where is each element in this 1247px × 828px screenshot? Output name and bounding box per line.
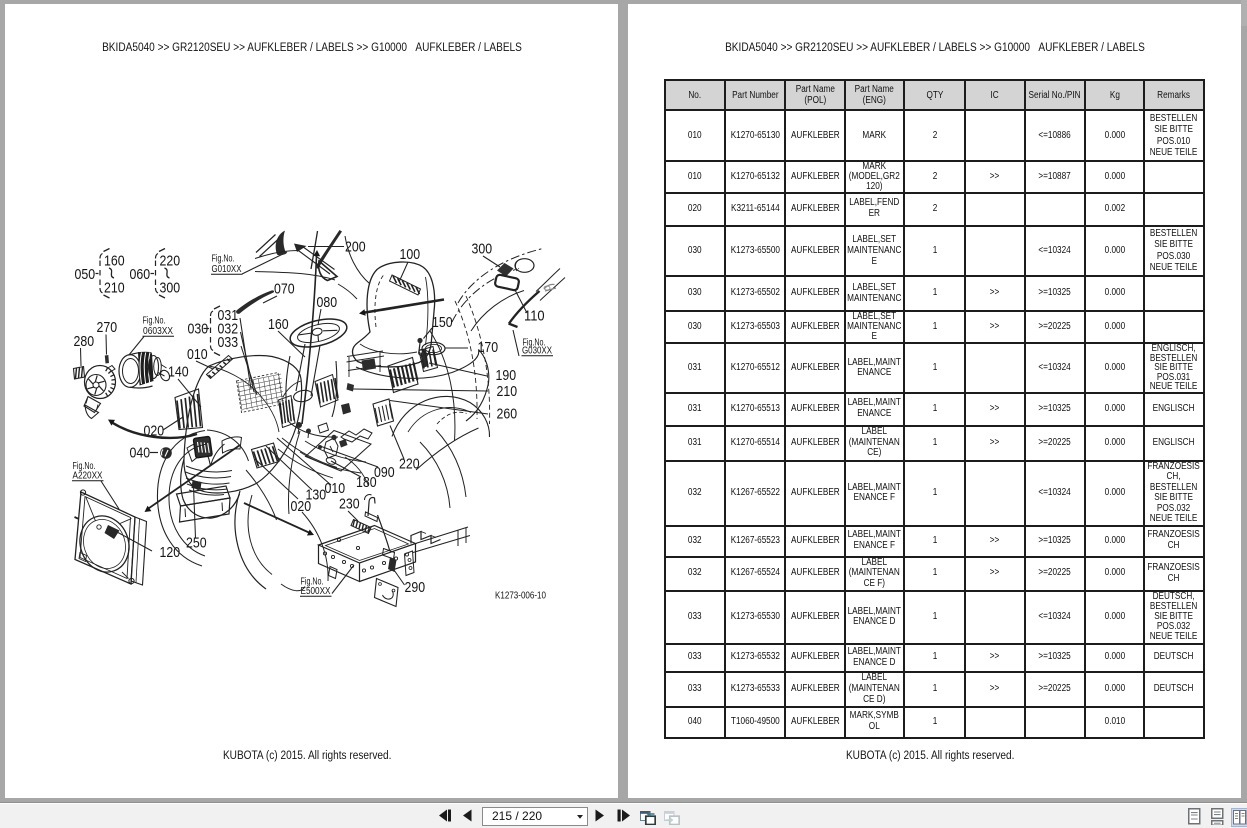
svg-text:230: 230 — [339, 496, 360, 513]
svg-text:G010XX: G010XX — [212, 264, 242, 275]
svg-text:010: 010 — [187, 346, 208, 363]
svg-text:040: 040 — [130, 445, 151, 462]
svg-text:140: 140 — [168, 364, 189, 381]
svg-text:Fig.No.: Fig.No. — [143, 316, 166, 327]
svg-text:220: 220 — [160, 253, 181, 270]
svg-text:Fig.No.: Fig.No. — [212, 254, 235, 265]
svg-text:250: 250 — [186, 535, 207, 552]
svg-text:300: 300 — [472, 241, 493, 258]
svg-text:K1273-006-10: K1273-006-10 — [495, 591, 546, 602]
svg-text:300: 300 — [160, 280, 181, 297]
svg-text:050: 050 — [75, 266, 96, 283]
svg-text:290: 290 — [405, 579, 426, 596]
svg-text:080: 080 — [317, 294, 338, 311]
svg-text:200: 200 — [345, 239, 366, 256]
svg-text:280: 280 — [74, 333, 95, 350]
svg-text:270: 270 — [97, 319, 118, 336]
svg-text:033: 033 — [218, 334, 239, 351]
svg-text:100: 100 — [400, 246, 421, 263]
svg-text:060: 060 — [130, 266, 151, 283]
svg-text:210: 210 — [497, 383, 518, 400]
svg-text:160: 160 — [268, 316, 289, 333]
svg-text:110: 110 — [524, 308, 545, 325]
svg-text:E500XX: E500XX — [301, 586, 331, 597]
svg-text:020: 020 — [291, 498, 312, 515]
svg-text:190: 190 — [496, 367, 517, 384]
svg-text:210: 210 — [104, 280, 125, 297]
svg-text:150: 150 — [432, 314, 453, 331]
svg-text:260: 260 — [497, 406, 518, 423]
svg-text:0603XX: 0603XX — [143, 326, 173, 337]
svg-text:160: 160 — [104, 253, 125, 270]
svg-text:G030XX: G030XX — [522, 346, 552, 357]
svg-text:170: 170 — [478, 339, 499, 356]
svg-text:070: 070 — [274, 281, 295, 298]
svg-text:A220XX: A220XX — [73, 471, 103, 482]
svg-text:120: 120 — [160, 544, 181, 561]
